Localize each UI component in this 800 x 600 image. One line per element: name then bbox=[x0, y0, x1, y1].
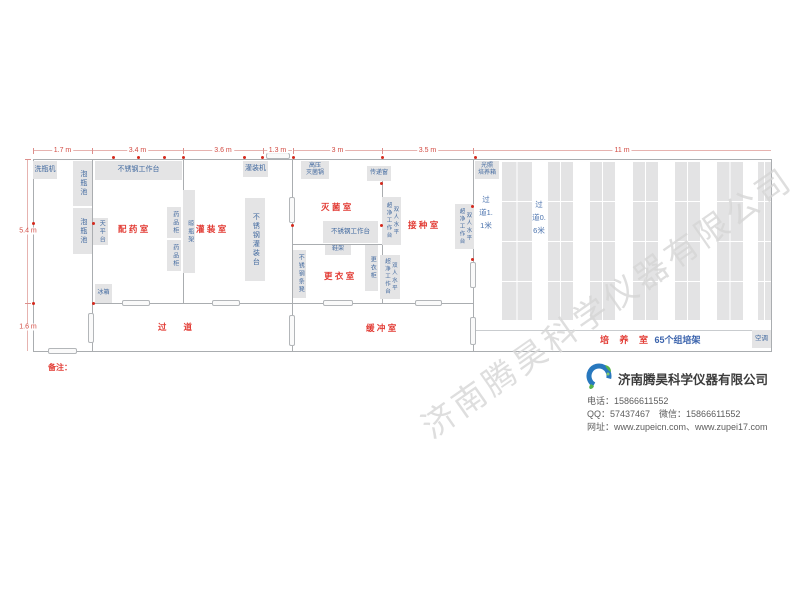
room-label: 更 衣 室 bbox=[324, 270, 354, 282]
aisle-label: 过道0.6米 bbox=[532, 198, 546, 237]
dimension-horizontal: 3.4 m bbox=[92, 150, 183, 151]
dimension-horizontal: 3 m bbox=[293, 150, 382, 151]
power-socket-dot bbox=[112, 156, 115, 159]
door-symbol bbox=[289, 315, 295, 346]
room-label: 缓 冲 室 bbox=[366, 322, 396, 334]
equipment-box: 冰箱 bbox=[95, 284, 112, 303]
equipment-box: 药品柜 bbox=[167, 207, 181, 238]
wall-line bbox=[771, 159, 772, 352]
power-socket-dot bbox=[380, 182, 383, 185]
equipment-box: 高压灭菌锅 bbox=[301, 161, 329, 179]
equipment-box: 更衣柜 bbox=[365, 245, 378, 291]
equipment-box: 鞋架 bbox=[325, 245, 351, 255]
power-socket-dot bbox=[32, 302, 35, 305]
company-name: 济南腾昊科学仪器有限公司 bbox=[618, 369, 768, 388]
dimension-horizontal: 1.7 m bbox=[33, 150, 92, 151]
door-symbol bbox=[470, 262, 476, 288]
power-socket-dot bbox=[292, 156, 295, 159]
room-label: 灌 装 室 bbox=[196, 223, 226, 235]
svg-text:TH: TH bbox=[594, 374, 603, 381]
cultivation-room-label: 培 养 室 65个组培架 bbox=[600, 333, 701, 346]
aisle-label: 过道1.1米 bbox=[479, 193, 493, 232]
wall-line bbox=[473, 330, 771, 331]
equipment-box: 不锈钢条凳 bbox=[293, 250, 306, 298]
equipment-box: 双人水平超净工作台 bbox=[380, 255, 400, 299]
door-symbol bbox=[122, 300, 150, 306]
dimension-label: 5.4 m bbox=[17, 228, 39, 235]
dimension-horizontal: 1.3 m bbox=[263, 150, 292, 151]
equipment-box: 洗瓶机 bbox=[33, 161, 57, 179]
dimension-horizontal: 3.6 m bbox=[183, 150, 263, 151]
equipment-box: 药品柜 bbox=[167, 240, 181, 271]
dimension-vertical: 5.4 m bbox=[27, 159, 28, 303]
room-label: 接 种 室 bbox=[408, 219, 438, 231]
door-symbol bbox=[323, 300, 353, 306]
door-symbol bbox=[289, 197, 295, 223]
room-label: 过 道 bbox=[158, 321, 192, 333]
equipment-box: 不锈钢灌装台 bbox=[245, 198, 265, 281]
equipment-box: 泡瓶池 bbox=[73, 208, 92, 254]
power-socket-dot bbox=[471, 258, 474, 261]
door-symbol bbox=[266, 153, 290, 159]
equipment-box: 泡瓶池 bbox=[73, 161, 92, 206]
power-socket-dot bbox=[261, 156, 264, 159]
room-label: 配 药 室 bbox=[118, 223, 148, 235]
equipment-box: 晾瓶架 bbox=[183, 190, 195, 273]
power-socket-dot bbox=[381, 156, 384, 159]
power-socket-dot bbox=[182, 156, 185, 159]
equipment-box: 光照培养箱 bbox=[475, 161, 499, 179]
power-socket-dot bbox=[243, 156, 246, 159]
dimension-label: 3.4 m bbox=[127, 147, 149, 154]
power-socket-dot bbox=[471, 205, 474, 208]
door-symbol bbox=[212, 300, 240, 306]
dimension-label: 1.6 m bbox=[17, 324, 39, 331]
dimension-label: 3.5 m bbox=[417, 147, 439, 154]
equipment-box: 空调 bbox=[752, 330, 771, 348]
dimension-label: 1.3 m bbox=[267, 147, 289, 154]
room-label: 培 养 室 bbox=[600, 335, 652, 345]
dimension-vertical: 1.6 m bbox=[27, 303, 28, 351]
equipment-box: 双人水平超净工作台 bbox=[455, 204, 474, 249]
dimension-label: 3 m bbox=[330, 147, 346, 154]
power-socket-dot bbox=[163, 156, 166, 159]
power-socket-dot bbox=[32, 222, 35, 225]
dimension-label: 1.7 m bbox=[52, 147, 74, 154]
culture-rack bbox=[758, 162, 771, 320]
wall-line bbox=[33, 351, 772, 352]
equipment-box: 灌装机 bbox=[243, 161, 268, 177]
door-symbol bbox=[470, 317, 476, 345]
door-symbol bbox=[415, 300, 442, 306]
power-socket-dot bbox=[474, 156, 477, 159]
culture-rack bbox=[717, 162, 743, 320]
culture-rack bbox=[675, 162, 700, 320]
equipment-box: 不锈钢工作台 bbox=[95, 161, 182, 180]
company-logo-icon: TH bbox=[585, 361, 614, 390]
power-socket-dot bbox=[380, 224, 383, 227]
equipment-box: 不锈钢工作台 bbox=[323, 221, 378, 243]
power-socket-dot bbox=[291, 224, 294, 227]
company-website: 网址：www.zupeicn.com、www.zupei17.com bbox=[587, 420, 768, 433]
dimension-label: 3.6 m bbox=[212, 147, 234, 154]
door-symbol bbox=[88, 313, 94, 343]
floor-plan-page: 洗瓶机泡瓶池泡瓶池不锈钢工作台灌装机天平台药品柜药品柜晾瓶架不锈钢灌装台冰箱高压… bbox=[0, 0, 800, 600]
rack-count-label: 65个组培架 bbox=[655, 335, 701, 345]
culture-rack bbox=[633, 162, 658, 320]
equipment-box: 双人水平超净工作台 bbox=[382, 197, 401, 245]
door-symbol bbox=[48, 348, 77, 354]
floor-plan: 洗瓶机泡瓶池泡瓶池不锈钢工作台灌装机天平台药品柜药品柜晾瓶架不锈钢灌装台冰箱高压… bbox=[0, 0, 800, 600]
power-socket-dot bbox=[92, 222, 95, 225]
culture-rack bbox=[502, 162, 532, 320]
dimension-horizontal: 11 m bbox=[473, 150, 771, 151]
room-label: 灭 菌 室 bbox=[321, 201, 351, 213]
company-qq-wechat: QQ：57437467 微信：15866611552 bbox=[587, 407, 740, 420]
wall-line bbox=[33, 159, 772, 160]
dimension-label: 11 m bbox=[612, 147, 631, 154]
power-socket-dot bbox=[92, 302, 95, 305]
notes-title: 备注： bbox=[48, 362, 72, 373]
culture-rack bbox=[548, 162, 573, 320]
dimension-horizontal: 3.5 m bbox=[382, 150, 473, 151]
culture-rack bbox=[590, 162, 615, 320]
equipment-box: 传递窗 bbox=[367, 166, 391, 181]
equipment-box: 天平台 bbox=[93, 218, 108, 245]
power-socket-dot bbox=[137, 156, 140, 159]
company-phone: 电话：15866611552 bbox=[587, 394, 668, 407]
